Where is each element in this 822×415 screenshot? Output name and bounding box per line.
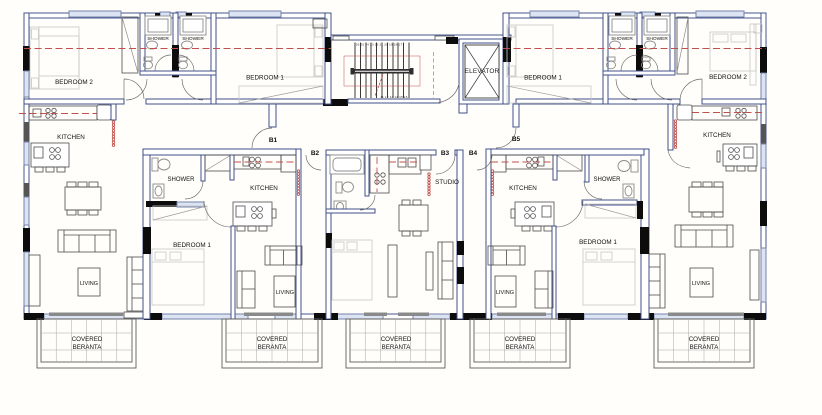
svg-text:COVERED: COVERED [257,336,288,343]
svg-text:LIVING: LIVING [276,290,294,296]
svg-text:KITCHEN: KITCHEN [509,185,537,192]
svg-text:COVERED: COVERED [689,336,720,343]
svg-text:BERANTA: BERANTA [506,344,536,351]
svg-text:LIVING: LIVING [496,290,514,296]
svg-text:BEDROOM 1: BEDROOM 1 [173,242,211,249]
svg-text:BERANTA: BERANTA [258,344,288,351]
svg-text:KITCHEN: KITCHEN [250,185,278,192]
svg-text:B2: B2 [311,150,320,157]
svg-text:COVERED: COVERED [381,336,412,343]
svg-text:SHOWER: SHOWER [594,177,622,183]
svg-text:LIVING: LIVING [692,281,710,287]
svg-text:B3: B3 [441,150,450,157]
svg-text:STUDIO: STUDIO [435,179,459,186]
svg-text:BERANTA: BERANTA [73,344,103,351]
svg-text:BEDROOM 2: BEDROOM 2 [55,79,93,86]
svg-text:11 12 13 14 15 16: 11 12 13 14 15 16 [380,95,407,99]
svg-text:ELEVATOR: ELEVATOR [465,68,500,75]
svg-text:BEDROOM 1: BEDROOM 1 [246,75,284,82]
svg-text:BEDROOM 1: BEDROOM 1 [524,75,562,82]
svg-text:COVERED: COVERED [72,336,103,343]
svg-text:B5: B5 [512,136,521,143]
svg-text:COVERED: COVERED [505,336,536,343]
svg-text:KITCHEN: KITCHEN [703,132,731,139]
svg-text:LIVING: LIVING [80,281,98,287]
svg-text:BEDROOM 1: BEDROOM 1 [579,239,617,246]
svg-text:B1: B1 [269,137,278,144]
svg-text:SHOWER: SHOWER [168,177,196,183]
svg-text:KITCHEN: KITCHEN [57,134,85,141]
svg-text:BEDROOM 2: BEDROOM 2 [709,74,747,81]
svg-text:BERANTA: BERANTA [690,344,720,351]
svg-text:BERANTA: BERANTA [382,344,412,351]
svg-text:26 25 24 23 22 21 20 19 18 17: 26 25 24 23 22 21 20 19 18 17 [356,43,403,47]
svg-text:B4: B4 [469,150,478,157]
